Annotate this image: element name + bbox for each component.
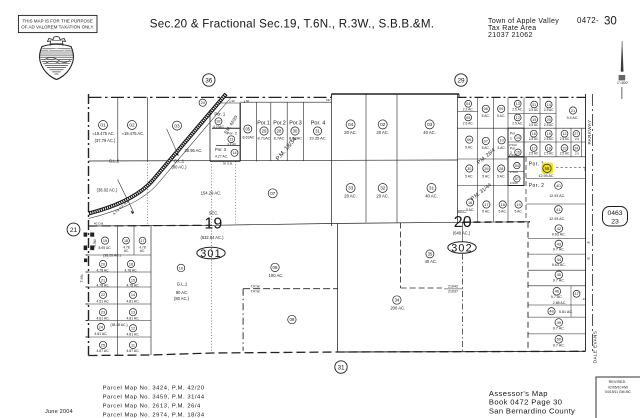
svg-text:2.5 AC.: 2.5 AC. xyxy=(463,122,474,126)
svg-text:30: 30 xyxy=(604,16,617,28)
svg-text:15: 15 xyxy=(131,278,135,282)
svg-text:21: 21 xyxy=(571,109,575,113)
svg-text:2.5 AC: 2.5 AC xyxy=(560,137,570,141)
svg-text:T.6N.: T.6N. xyxy=(79,273,84,282)
svg-text:2.88 AC.: 2.88 AC. xyxy=(553,301,566,305)
svg-text:05: 05 xyxy=(466,116,470,120)
svg-text:17: 17 xyxy=(140,239,144,243)
svg-text:04/19/11 GM-MC: 04/19/11 GM-MC xyxy=(605,390,631,394)
svg-text:13: 13 xyxy=(131,311,135,315)
svg-text:40: 40 xyxy=(587,241,591,245)
svg-text:50: 50 xyxy=(587,257,591,261)
svg-text:2: 2 xyxy=(454,214,463,231)
svg-text:Por. 2: Por. 2 xyxy=(529,183,544,189)
svg-text:40 O.B.: 40 O.B. xyxy=(94,222,104,226)
svg-text:4.81 AC.: 4.81 AC. xyxy=(96,317,109,321)
svg-text:2.5 AC: 2.5 AC xyxy=(560,152,570,156)
svg-text:21037 21062: 21037 21062 xyxy=(488,32,533,39)
svg-text:10: 10 xyxy=(499,139,503,143)
svg-text:Por.2: Por.2 xyxy=(273,120,286,126)
svg-text:21042: 21042 xyxy=(448,284,458,288)
svg-text:2.5 AC: 2.5 AC xyxy=(529,123,539,127)
svg-text:9.7 AC.: 9.7 AC. xyxy=(553,248,565,252)
svg-text:Por.1: Por.1 xyxy=(257,120,270,126)
svg-text:19: 19 xyxy=(547,132,551,136)
svg-text:Por. 1: Por. 1 xyxy=(214,111,226,116)
svg-text:200 AC.: 200 AC. xyxy=(390,306,405,311)
svg-text:20 AC.: 20 AC. xyxy=(344,194,357,199)
svg-text:23: 23 xyxy=(562,146,566,150)
svg-text:14: 14 xyxy=(232,151,236,155)
svg-text:Tax Rate Area: Tax Rate Area xyxy=(488,25,537,32)
svg-text:PARKWAY: PARKWAY xyxy=(587,120,592,145)
svg-text:14: 14 xyxy=(131,293,135,297)
svg-text:19.35 AC.: 19.35 AC. xyxy=(309,135,327,140)
svg-text:14: 14 xyxy=(547,103,551,107)
svg-text:1: 1 xyxy=(510,136,512,140)
svg-text:42: 42 xyxy=(557,226,562,231)
svg-text:2.5 AC: 2.5 AC xyxy=(529,152,539,156)
svg-text:(38.02 AC.): (38.02 AC.) xyxy=(97,188,118,193)
svg-text:02: 02 xyxy=(129,123,135,129)
svg-text:4.3 AC: 4.3 AC xyxy=(227,142,237,146)
svg-text:19: 19 xyxy=(103,239,107,243)
svg-text:08: 08 xyxy=(273,265,278,270)
svg-text:Parcel Map No. 3459, P.M. 31/4: Parcel Map No. 3459, P.M. 31/44 xyxy=(103,394,205,400)
svg-text:2.5 AC: 2.5 AC xyxy=(544,108,554,112)
svg-text:10: 10 xyxy=(179,265,184,270)
svg-text:Book 0472 Page 30: Book 0472 Page 30 xyxy=(489,398,563,407)
svg-text:23: 23 xyxy=(611,219,619,226)
svg-text:48: 48 xyxy=(549,310,553,314)
svg-text:17: 17 xyxy=(484,203,488,207)
svg-text:18: 18 xyxy=(501,203,505,207)
svg-text:8.95 AC.: 8.95 AC. xyxy=(98,246,111,250)
svg-text:0463: 0463 xyxy=(607,210,622,217)
svg-text:12: 12 xyxy=(516,116,520,120)
svg-text:4.27 AC.: 4.27 AC. xyxy=(215,155,228,159)
svg-text:AC.: AC. xyxy=(124,249,129,253)
svg-text:Por.3: Por.3 xyxy=(289,120,302,126)
svg-text:4.87 AC.: 4.87 AC. xyxy=(96,349,109,353)
svg-text:16: 16 xyxy=(532,132,536,136)
svg-text:4.51 AC.: 4.51 AC. xyxy=(96,299,109,303)
svg-text:31: 31 xyxy=(532,103,536,107)
svg-text:40: 40 xyxy=(556,183,561,188)
svg-text:Town of Apple Valley: Town of Apple Valley xyxy=(488,18,559,25)
svg-text:9.63 AC.: 9.63 AC. xyxy=(552,232,566,236)
svg-text:G.L.2: G.L.2 xyxy=(109,158,120,163)
svg-text:2.5 AC: 2.5 AC xyxy=(544,123,554,127)
svg-text:11: 11 xyxy=(131,343,135,347)
svg-text:5 AC.: 5 AC. xyxy=(514,210,522,214)
svg-text:36: 36 xyxy=(205,77,213,84)
svg-text:05: 05 xyxy=(245,127,250,132)
svg-text:25: 25 xyxy=(101,343,105,347)
svg-text:34: 34 xyxy=(394,298,399,303)
svg-text:29: 29 xyxy=(262,129,267,134)
svg-text:13: 13 xyxy=(516,102,520,106)
svg-text:DALE EVANS: DALE EVANS xyxy=(593,331,598,364)
svg-text:31: 31 xyxy=(429,186,435,192)
svg-text:2.5: 2.5 xyxy=(575,152,579,156)
svg-text:43.: 43. xyxy=(583,297,587,301)
svg-text:45: 45 xyxy=(557,272,562,277)
svg-text:4.78 AC.: 4.78 AC. xyxy=(126,283,139,287)
svg-text:2.5 AC: 2.5 AC xyxy=(544,137,554,141)
svg-text:5 AC.: 5 AC. xyxy=(497,175,505,179)
svg-text:2.9: 2.9 xyxy=(575,137,579,141)
svg-text:≈19.475 AC.: ≈19.475 AC. xyxy=(92,131,115,136)
svg-text:June 2004: June 2004 xyxy=(45,409,73,415)
svg-text:5 AC.: 5 AC. xyxy=(497,146,505,150)
svg-text:Assessor's Map: Assessor's Map xyxy=(489,389,548,398)
svg-text:24: 24 xyxy=(574,146,578,150)
svg-text:22: 22 xyxy=(101,293,105,297)
svg-text:18: 18 xyxy=(547,146,551,150)
svg-text:T.R.W.: T.R.W. xyxy=(251,284,260,288)
svg-text:OF AD VALOREM TAXATION ONLY.: OF AD VALOREM TAXATION ONLY. xyxy=(21,25,94,30)
svg-text:20: 20 xyxy=(201,101,205,105)
svg-text:20 AC.: 20 AC. xyxy=(376,130,389,135)
svg-text:302: 302 xyxy=(451,242,473,254)
svg-text:03: 03 xyxy=(174,123,180,129)
svg-text:5 AC.: 5 AC. xyxy=(497,114,505,118)
svg-text:12: 12 xyxy=(131,327,135,331)
svg-text:2.5AC: 2.5AC xyxy=(510,181,519,185)
svg-text:20 AC.: 20 AC. xyxy=(376,194,389,199)
svg-text:06: 06 xyxy=(467,138,471,142)
svg-text:23: 23 xyxy=(101,311,105,315)
svg-text:35: 35 xyxy=(428,251,433,256)
svg-text:9.7 AC.: 9.7 AC. xyxy=(551,295,563,299)
svg-text:2.5 AC: 2.5 AC xyxy=(529,108,539,112)
svg-text:58: 58 xyxy=(545,166,550,171)
svg-text:San Bernardino County: San Bernardino County xyxy=(489,407,575,416)
svg-text:20: 20 xyxy=(547,118,551,122)
svg-text:Parcel Map No. 2613, P.M. 26/4: Parcel Map No. 2613, P.M. 26/4 xyxy=(103,403,201,409)
svg-text:Parcel Map No. 3424, P.M. 42/2: Parcel Map No. 3424, P.M. 42/20 xyxy=(103,385,205,391)
svg-text:5.81 AC.: 5.81 AC. xyxy=(559,310,573,314)
svg-text:≈19.475 AC.: ≈19.475 AC. xyxy=(122,131,145,136)
svg-text:4.81 AC.: 4.81 AC. xyxy=(126,317,139,321)
svg-text:32: 32 xyxy=(380,186,386,192)
svg-text:4.78 AC.: 4.78 AC. xyxy=(96,283,109,287)
svg-text:G.L.1: G.L.1 xyxy=(177,281,188,286)
svg-text:47: 47 xyxy=(575,292,579,296)
svg-text:9.4 AC.: 9.4 AC. xyxy=(567,116,579,120)
svg-text:5 AC.: 5 AC. xyxy=(482,175,490,179)
svg-text:14: 14 xyxy=(516,136,520,140)
svg-text:Parcel Map No. 2974, P.M. 18/3: Parcel Map No. 2974, P.M. 18/34 xyxy=(103,412,205,418)
svg-text:07: 07 xyxy=(270,191,276,197)
svg-text:18: 18 xyxy=(124,239,128,243)
svg-text:THIS MAP IS FOR THE PURPOSE: THIS MAP IS FOR THE PURPOSE xyxy=(22,19,92,24)
svg-text:R.3W.: R.3W. xyxy=(93,239,97,248)
svg-text:1"=800': 1"=800' xyxy=(617,81,628,85)
svg-text:5 AC.: 5 AC. xyxy=(465,175,473,179)
svg-text:9.63 AC.: 9.63 AC. xyxy=(552,263,566,267)
svg-text:44: 44 xyxy=(557,257,562,262)
svg-text:12.93 AC.: 12.93 AC. xyxy=(549,194,565,198)
svg-text:12: 12 xyxy=(562,132,566,136)
svg-text:16: 16 xyxy=(468,201,472,205)
svg-text:4.78 AC.: 4.78 AC. xyxy=(96,268,109,272)
svg-text:80 AC.: 80 AC. xyxy=(176,290,188,295)
svg-text:17: 17 xyxy=(532,146,536,150)
svg-text:9.7 AC.: 9.7 AC. xyxy=(553,327,565,331)
svg-text:50: 50 xyxy=(557,337,562,342)
svg-text:9.7 AC.: 9.7 AC. xyxy=(553,278,565,282)
svg-text:4.78 AC.: 4.78 AC. xyxy=(124,268,137,272)
svg-text:5 AC.: 5 AC. xyxy=(499,210,507,214)
svg-text:12.93 AC.: 12.93 AC. xyxy=(549,217,565,221)
svg-text:46: 46 xyxy=(555,289,560,294)
svg-text:0: 0 xyxy=(463,214,472,231)
svg-text:9.7 AC.: 9.7 AC. xyxy=(553,343,565,347)
svg-text:4.81 AC.: 4.81 AC. xyxy=(126,299,139,303)
svg-text:(632.54 AC.): (632.54 AC.) xyxy=(201,235,225,240)
svg-text:5 AC.: 5 AC. xyxy=(465,145,473,149)
svg-text:27: 27 xyxy=(574,132,578,136)
svg-text:AC.: AC. xyxy=(140,249,145,253)
svg-text:09: 09 xyxy=(289,317,294,322)
svg-text:04: 04 xyxy=(348,122,354,128)
svg-text:100 AC.: 100 AC. xyxy=(269,273,284,278)
svg-text:49: 49 xyxy=(557,320,562,325)
svg-text:43: 43 xyxy=(557,241,562,246)
svg-text:8.71AC: 8.71AC xyxy=(258,136,271,141)
svg-text:29: 29 xyxy=(457,77,465,84)
svg-text:4.81 AC.: 4.81 AC. xyxy=(94,332,107,336)
svg-text:T.R.W.: T.R.W. xyxy=(251,290,260,294)
svg-text:Por. 4: Por. 4 xyxy=(311,120,326,126)
svg-text:0472-: 0472- xyxy=(577,16,599,25)
svg-text:28: 28 xyxy=(277,129,282,134)
svg-text:2.5AC: 2.5AC xyxy=(510,170,519,174)
svg-text:01: 01 xyxy=(100,123,106,129)
svg-text:21: 21 xyxy=(101,278,105,282)
svg-text:2.5 AC.: 2.5 AC. xyxy=(512,107,523,111)
svg-text:(37.79 AC.): (37.79 AC.) xyxy=(95,138,116,143)
svg-text:09: 09 xyxy=(499,107,503,111)
svg-text:9: 9 xyxy=(213,216,222,233)
svg-text:8.7AC: 8.7AC xyxy=(274,136,285,141)
svg-text:8.63AC: 8.63AC xyxy=(243,136,255,140)
svg-text:2.5AC: 2.5AC xyxy=(509,153,518,157)
svg-text:04: 04 xyxy=(466,102,470,106)
svg-text:31: 31 xyxy=(337,364,345,371)
svg-text:20 AC.: 20 AC. xyxy=(344,130,357,135)
svg-text:30: 30 xyxy=(467,167,471,171)
svg-text:2.5 AC: 2.5 AC xyxy=(529,137,539,141)
svg-text:4.81 AC.: 4.81 AC. xyxy=(126,333,139,337)
svg-text:15: 15 xyxy=(532,118,536,122)
svg-text:03: 03 xyxy=(427,122,433,128)
svg-text:33: 33 xyxy=(348,186,354,192)
svg-text:30: 30 xyxy=(293,129,298,134)
svg-text:2.2 AC.: 2.2 AC. xyxy=(463,107,474,111)
svg-text:21037: 21037 xyxy=(448,290,458,294)
svg-text:301: 301 xyxy=(200,248,222,260)
svg-text:Por. 3: Por. 3 xyxy=(215,147,227,152)
svg-text:13: 13 xyxy=(229,138,233,142)
svg-text:24: 24 xyxy=(99,325,103,329)
svg-text:2.5 AC: 2.5 AC xyxy=(544,152,554,156)
svg-text:90: 90 xyxy=(231,99,235,103)
svg-text:54: 54 xyxy=(515,164,519,168)
svg-text:30 O.B.: 30 O.B. xyxy=(223,162,233,166)
svg-text:12.95 AC.: 12.95 AC. xyxy=(538,174,554,178)
svg-text:40 AC.: 40 AC. xyxy=(423,130,436,135)
svg-text:28: 28 xyxy=(499,167,503,171)
svg-text:29: 29 xyxy=(484,167,488,171)
svg-text:5 AC.: 5 AC. xyxy=(482,210,490,214)
svg-text:5 AC.: 5 AC. xyxy=(466,208,474,212)
svg-text:02: 02 xyxy=(380,122,386,128)
svg-text:(640 AC.): (640 AC.) xyxy=(453,231,471,236)
svg-text:31: 31 xyxy=(315,129,320,134)
svg-text:(38.25 AC.): (38.25 AC.) xyxy=(103,253,121,257)
svg-text:20: 20 xyxy=(101,262,105,266)
svg-text:1: 1 xyxy=(204,216,213,233)
svg-text:2.5 AC.: 2.5 AC. xyxy=(512,122,523,126)
svg-text:REVISED: REVISED xyxy=(609,380,626,384)
svg-text:4.87 AC.: 4.87 AC. xyxy=(126,349,139,353)
svg-text:5 AC.: 5 AC. xyxy=(482,114,490,118)
svg-text:06: 06 xyxy=(484,107,488,111)
svg-text:154.29 AC.: 154.29 AC. xyxy=(201,191,222,196)
svg-text:32: 32 xyxy=(216,120,220,124)
svg-text:(80 AC.): (80 AC.) xyxy=(174,296,190,301)
svg-text:4.23AC: 4.23AC xyxy=(213,125,225,129)
svg-text:16: 16 xyxy=(129,262,133,266)
svg-text:07: 07 xyxy=(484,139,488,143)
svg-text:697: 697 xyxy=(326,98,331,102)
svg-text:(38.48 AC.): (38.48 AC.) xyxy=(110,323,127,327)
svg-text:40 AC.: 40 AC. xyxy=(425,194,438,199)
svg-text:19: 19 xyxy=(516,203,520,207)
svg-text:Por: Por xyxy=(510,132,516,136)
svg-text:40 AC.: 40 AC. xyxy=(425,259,437,264)
svg-text:Sec.20 & Fractional Sec.19, T.: Sec.20 & Fractional Sec.19, T.6N., R.3W.… xyxy=(150,18,434,31)
svg-text:21: 21 xyxy=(70,227,78,234)
svg-text:41: 41 xyxy=(556,207,561,212)
